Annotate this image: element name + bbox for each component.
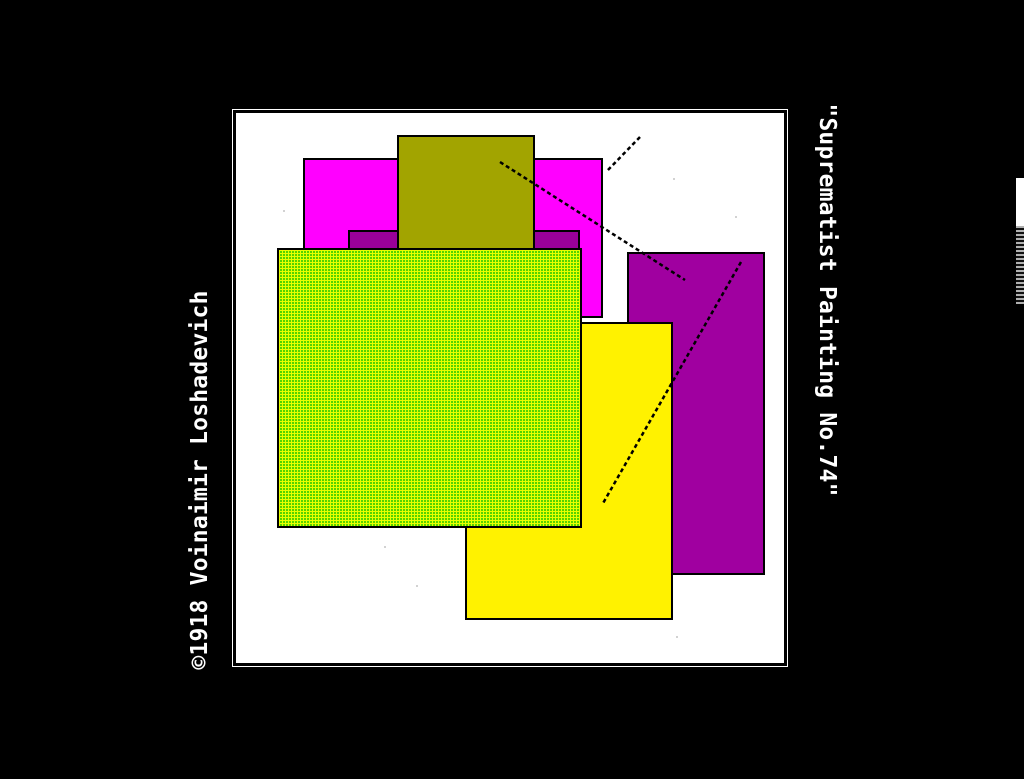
painting-title-text: "Suprematist Painting No.74"	[814, 103, 840, 496]
diagonal-line-upper	[500, 162, 685, 280]
diagonal-line-lower	[602, 262, 741, 505]
diagonal-lines-overlay	[236, 113, 784, 663]
diagonal-line-short-upper	[606, 137, 640, 172]
screen-edge-artifact-white	[1016, 178, 1024, 226]
painting-canvas	[233, 110, 787, 666]
screen-background: ©1918 Voinaimir Loshadevich "Suprematist…	[0, 0, 1024, 779]
screen-edge-artifact-stripes	[1016, 226, 1024, 304]
artist-credit-text: ©1918 Voinaimir Loshadevich	[187, 290, 213, 669]
